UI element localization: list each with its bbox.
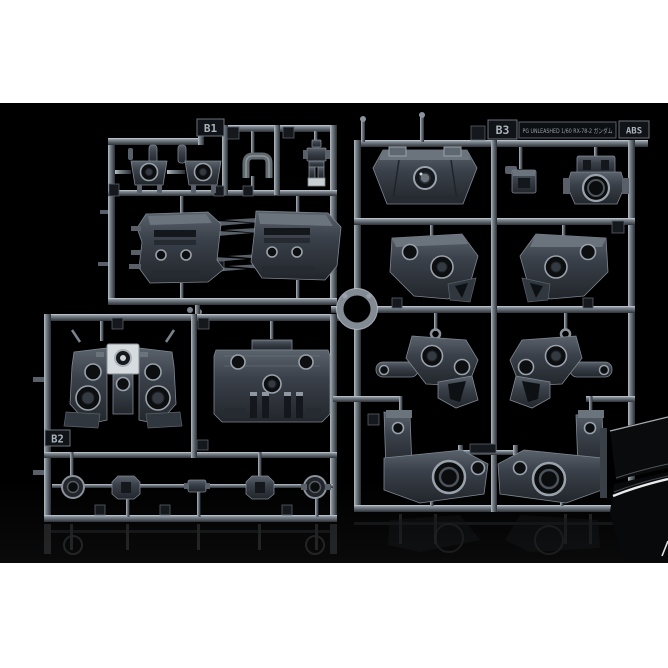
b1-tag: B1	[197, 119, 224, 136]
b3-tag: B3	[488, 120, 517, 139]
b3-tag-label: B3	[496, 123, 510, 137]
product-photo: B1	[0, 0, 668, 668]
top-white-bar	[0, 0, 668, 103]
b1-tag-label: B1	[204, 122, 218, 135]
photo-canvas: B1	[0, 0, 668, 668]
b2-tag-label: B2	[51, 434, 64, 446]
abs-material-tag: ABS	[619, 121, 649, 138]
kit-title-plate: PG UNLEASHED 1/60 RX-78-2 ガンダム	[519, 122, 616, 138]
b3-chest-plate-part	[373, 147, 477, 204]
ring-junction	[337, 289, 378, 330]
bottom-white-bar	[0, 563, 668, 668]
b2-core-plate-part	[214, 340, 330, 422]
b2-tag: B2	[45, 430, 70, 446]
abs-material-label: ABS	[626, 127, 642, 137]
kit-title-label: PG UNLEASHED 1/60 RX-78-2 ガンダム	[523, 126, 613, 135]
